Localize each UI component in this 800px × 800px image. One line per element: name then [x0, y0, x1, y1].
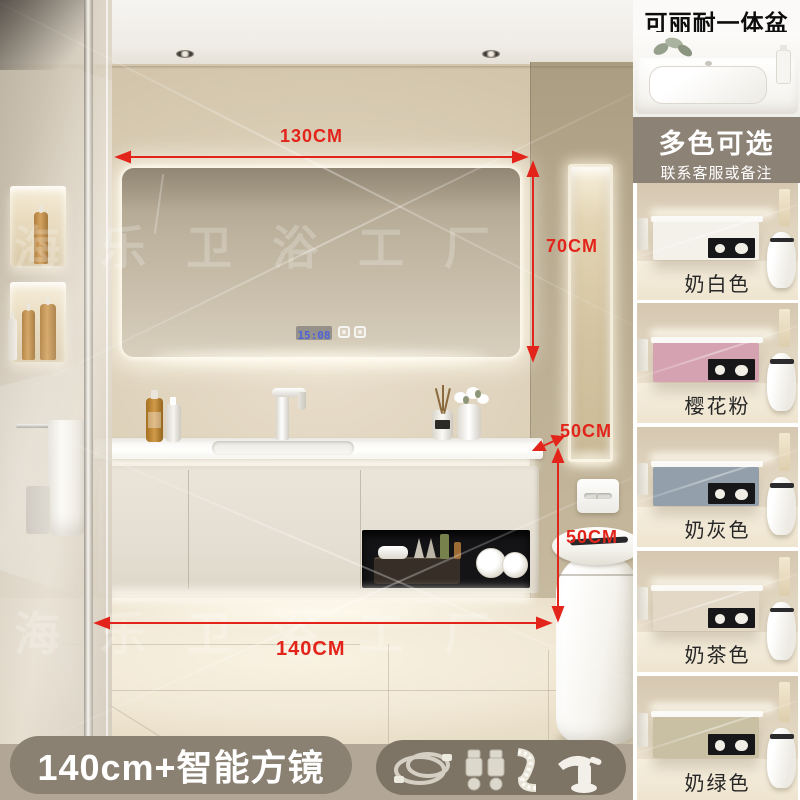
mirror-touch-button-icon: [354, 326, 366, 338]
color-option-milk-green[interactable]: 奶绿色: [637, 676, 798, 800]
smart-toilet: [556, 552, 633, 744]
sidebar-header: 可丽耐一体盆: [633, 0, 800, 117]
color-option-label: 奶茶色: [637, 639, 798, 668]
color-option-label: 奶绿色: [637, 767, 798, 796]
soap-bottle: [166, 404, 181, 442]
plumbing-accessories-icon: [382, 742, 620, 794]
clock-time: 15:08: [297, 329, 330, 342]
mirror-touch-button-icon: [338, 326, 350, 338]
integrated-sink-photo: [633, 32, 800, 117]
one-piece-basin: [649, 66, 767, 104]
downlight-icon: [482, 50, 500, 58]
color-option-label: 樱花粉: [637, 390, 798, 419]
mirror-backlight: [150, 352, 490, 364]
flower-vase: [457, 404, 481, 440]
accessories-badge: [376, 740, 626, 795]
shelf-tray: [374, 557, 460, 584]
dimension-label-mirror-height: 70CM: [546, 236, 598, 257]
cabinet-open-shelf: [362, 530, 530, 588]
color-option-milk-tea[interactable]: 奶茶色: [637, 551, 798, 672]
integrated-basin: [212, 441, 354, 455]
soap-bottle: [776, 50, 791, 84]
color-options-sidebar: 可丽耐一体盆 多色可选 联系客服或备注 奶白色: [633, 0, 800, 800]
vanity-cabinet: [99, 466, 539, 593]
size-banner: 140cm+智能方镜: [10, 736, 352, 794]
lit-wall-niche: [568, 164, 613, 462]
dimension-label-mirror-width: 130CM: [280, 126, 343, 147]
downlight-icon: [176, 50, 194, 58]
dimension-label-cabinet-width: 140CM: [276, 638, 345, 661]
dimension-label-cabinet-height: 50CM: [566, 527, 618, 548]
reed-diffuser: [432, 410, 453, 440]
multi-color-title: 多色可选: [633, 122, 800, 161]
multi-color-banner: 多色可选 联系客服或备注: [633, 117, 800, 183]
faucet: [276, 392, 289, 440]
color-option-label: 奶白色: [637, 268, 798, 297]
contact-service-note: 联系客服或备注: [633, 162, 800, 183]
shower-glass-panel: [0, 0, 112, 746]
product-listing-image: 15:08: [0, 0, 800, 800]
color-option-label: 奶灰色: [637, 514, 798, 543]
color-option-sakura-pink[interactable]: 樱花粉: [637, 303, 798, 423]
color-option-milk-white[interactable]: 奶白色: [637, 183, 798, 300]
dimension-label-counter-depth: 50CM: [560, 421, 612, 442]
mirror-clock: 15:08: [296, 326, 332, 340]
color-option-milk-gray[interactable]: 奶灰色: [637, 427, 798, 547]
soap-bottle: [146, 398, 163, 442]
folded-towel: [378, 546, 408, 559]
size-banner-label: 140cm+智能方镜: [37, 739, 324, 791]
bathroom-scene: 15:08: [0, 0, 633, 800]
toilet-flush-plate: [577, 479, 619, 513]
niche-glow: [566, 452, 616, 464]
flush-button: [584, 493, 612, 499]
rolled-towel: [502, 552, 528, 578]
